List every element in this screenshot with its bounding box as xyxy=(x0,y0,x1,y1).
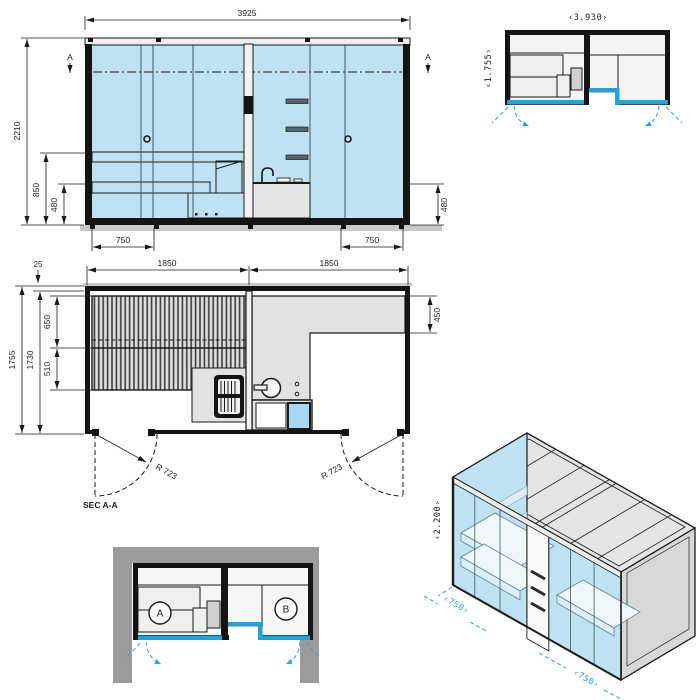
dim-bench-lower: 510 xyxy=(42,362,52,376)
shower-tray-plan xyxy=(288,403,310,429)
sink-basin xyxy=(277,178,290,182)
base-rail xyxy=(85,218,410,225)
center-partition-elevation xyxy=(244,44,253,218)
mini-plan-door-swing-right xyxy=(645,106,659,126)
dim-wall-offset: 25 xyxy=(34,260,43,269)
drawing-canvas: 3925 2210 850 480 480 750 750 A A xyxy=(0,0,700,700)
niche-heater xyxy=(207,601,220,628)
faucet-plan xyxy=(254,385,267,390)
door-swing-right: R 723 xyxy=(319,434,403,496)
plan-partition xyxy=(246,291,252,430)
mini-plan-heater xyxy=(571,68,582,90)
right-post xyxy=(403,44,410,218)
dim-total-width: 3925 xyxy=(238,8,257,18)
section-marker-left: A xyxy=(67,52,73,62)
mini-plan-door-swing-left xyxy=(514,106,529,126)
niche-door-swing-left xyxy=(146,642,161,664)
mini-plan-dim-width: ‹3.930› xyxy=(568,13,608,23)
niche-partition xyxy=(221,563,228,640)
dim-total-height: 2210 xyxy=(12,121,22,140)
door-swing-left: R 723 xyxy=(95,434,179,496)
floor-plan-view: R 723 R 723 SEC A-A 1850 1850 1755 1730 … xyxy=(7,258,442,510)
door-radius-left: R 723 xyxy=(154,462,179,482)
plan-wall-left xyxy=(85,286,90,434)
dim-module-left: 1850 xyxy=(158,258,177,268)
dim-counter-depth: 450 xyxy=(432,308,442,322)
niche-diagram-view: A B xyxy=(113,547,320,683)
mini-plan-view: ‹3.930› ‹1.755› xyxy=(484,13,682,126)
isometric-view: ‹2.200› ‹750› ‹750› xyxy=(424,433,695,700)
dim-depth-total: 1755 xyxy=(7,350,17,369)
mini-plan-recess xyxy=(589,92,617,105)
dim-bench-height: 850 xyxy=(31,183,41,197)
alcove-wall-left xyxy=(113,547,132,683)
counter-elevation xyxy=(252,183,310,218)
mini-plan-glass-right xyxy=(618,100,668,105)
door-radius-right: R 723 xyxy=(319,461,344,481)
niche-glass-step xyxy=(228,622,263,627)
wall-shelf xyxy=(286,99,308,104)
iso-dim-door-left: ‹750› xyxy=(441,594,471,617)
iso-dim-height: ‹2.200› xyxy=(433,500,443,540)
dim-module-right: 1850 xyxy=(320,258,339,268)
wall-shelf xyxy=(286,127,308,132)
left-post xyxy=(85,44,92,218)
niche-door-swing-right xyxy=(286,642,300,664)
room-a-label: A xyxy=(157,609,164,620)
front-elevation-view: 3925 2210 850 480 480 750 750 A A xyxy=(12,8,449,251)
niche-glass-right xyxy=(262,636,310,641)
iso-door-gap xyxy=(527,519,549,639)
niche-glass-left xyxy=(138,636,222,641)
alcove-wall-top xyxy=(113,547,319,563)
dim-seat-height-right: 480 xyxy=(439,198,449,212)
room-b-label: B xyxy=(283,605,290,616)
ground-shadow xyxy=(80,225,442,231)
iso-dim-door-right: ‹750› xyxy=(571,668,601,691)
plan-wall-top xyxy=(85,286,410,291)
mini-plan-glass-left xyxy=(507,100,584,105)
section-label: SEC A-A xyxy=(83,500,118,510)
dim-depth-inner: 1730 xyxy=(25,350,35,369)
dim-seat-height-left: 480 xyxy=(49,198,59,212)
plan-wall-bottom xyxy=(154,430,344,434)
dim-door-width-right: 750 xyxy=(365,235,379,245)
plan-wall-right xyxy=(405,286,410,434)
mini-plan-dim-depth: ‹1.755› xyxy=(484,48,494,88)
wall-shelf xyxy=(286,155,308,160)
dim-door-width-left: 750 xyxy=(116,235,130,245)
mini-plan-glass-step xyxy=(589,88,619,93)
section-marker-right: A xyxy=(425,52,431,62)
dim-bench-upper: 650 xyxy=(42,315,52,329)
technical-drawing-sheet: 3925 2210 850 480 480 750 750 A A xyxy=(0,0,700,700)
